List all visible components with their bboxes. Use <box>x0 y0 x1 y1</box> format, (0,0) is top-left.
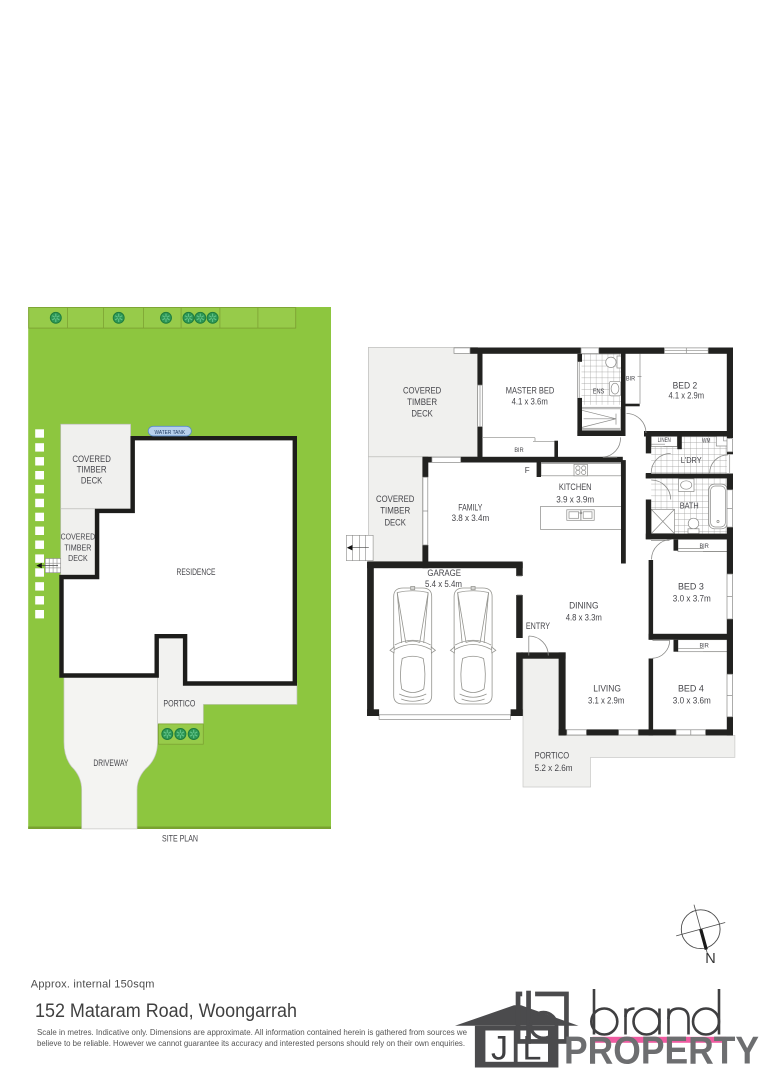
svg-text:DINING: DINING <box>569 600 598 611</box>
svg-text:MASTER BED: MASTER BED <box>506 385 555 396</box>
svg-text:3.8 x 3.4m: 3.8 x 3.4m <box>452 513 490 523</box>
svg-text:PORTICO: PORTICO <box>163 699 195 709</box>
svg-text:WATER TANK: WATER TANK <box>155 430 186 436</box>
svg-text:Approx. internal 150sqm: Approx. internal 150sqm <box>31 979 155 991</box>
svg-text:BIR: BIR <box>699 642 708 649</box>
svg-text:GARAGE: GARAGE <box>427 568 461 579</box>
svg-text:3.1 x 2.9m: 3.1 x 2.9m <box>588 695 624 705</box>
svg-text:DECK: DECK <box>81 475 103 485</box>
svg-text:BIR: BIR <box>514 447 523 454</box>
svg-text:ENTRY: ENTRY <box>526 621 550 631</box>
svg-text:J: J <box>491 1030 508 1068</box>
svg-text:LINEN: LINEN <box>658 438 671 444</box>
svg-text:Scale in metres. Indicative on: Scale in metres. Indicative only. Dimens… <box>37 1028 468 1037</box>
svg-text:RESIDENCE: RESIDENCE <box>177 567 216 577</box>
svg-text:DECK: DECK <box>68 553 88 563</box>
svg-text:4.8 x 3.3m: 4.8 x 3.3m <box>566 613 602 623</box>
svg-text:DECK: DECK <box>384 517 406 527</box>
svg-text:LIVING: LIVING <box>593 683 621 694</box>
svg-text:KITCHEN: KITCHEN <box>559 482 592 493</box>
svg-text:DRIVEWAY: DRIVEWAY <box>93 758 128 768</box>
svg-text:4.1 x 3.6m: 4.1 x 3.6m <box>512 396 548 406</box>
svg-text:DECK: DECK <box>411 408 433 418</box>
svg-text:TIMBER: TIMBER <box>64 542 91 552</box>
svg-text:4.1 x 2.9m: 4.1 x 2.9m <box>669 390 705 400</box>
svg-text:ENS: ENS <box>593 387 605 396</box>
svg-text:COVERED: COVERED <box>72 454 111 464</box>
svg-text:BATH: BATH <box>680 500 699 510</box>
svg-text:152 Mataram Road, Woongarrah: 152 Mataram Road, Woongarrah <box>35 1001 297 1022</box>
svg-text:PORTICO: PORTICO <box>535 751 570 762</box>
svg-text:COVERED: COVERED <box>61 532 96 542</box>
svg-text:believe to be reliable. Howeve: believe to be reliable. However we canno… <box>37 1039 465 1048</box>
svg-text:BIR: BIR <box>626 375 635 382</box>
svg-text:COVERED: COVERED <box>403 385 442 395</box>
svg-text:WM: WM <box>702 438 710 444</box>
svg-text:N: N <box>705 951 715 967</box>
svg-text:L'DRY: L'DRY <box>681 455 702 465</box>
svg-text:F: F <box>525 466 530 475</box>
svg-text:FAMILY: FAMILY <box>458 502 483 513</box>
svg-text:3.9 x 3.9m: 3.9 x 3.9m <box>556 495 594 505</box>
svg-text:BED 4: BED 4 <box>678 683 704 694</box>
svg-text:TIMBER: TIMBER <box>77 465 107 475</box>
svg-text:L: L <box>523 1030 542 1068</box>
svg-text:3.0 x 3.7m: 3.0 x 3.7m <box>673 593 711 603</box>
svg-text:5.4 x 5.4m: 5.4 x 5.4m <box>425 579 462 589</box>
svg-text:SITE PLAN: SITE PLAN <box>162 834 198 844</box>
svg-text:BED 3: BED 3 <box>678 581 704 592</box>
svg-text:3.0 x 3.6m: 3.0 x 3.6m <box>673 695 711 705</box>
svg-text:TIMBER: TIMBER <box>380 506 410 516</box>
svg-text:PROPERTY: PROPERTY <box>564 1030 759 1073</box>
svg-text:TIMBER: TIMBER <box>407 397 437 407</box>
svg-text:BIR: BIR <box>699 543 708 550</box>
svg-text:5.2 x 2.6m: 5.2 x 2.6m <box>535 763 573 773</box>
svg-text:COVERED: COVERED <box>376 494 415 504</box>
